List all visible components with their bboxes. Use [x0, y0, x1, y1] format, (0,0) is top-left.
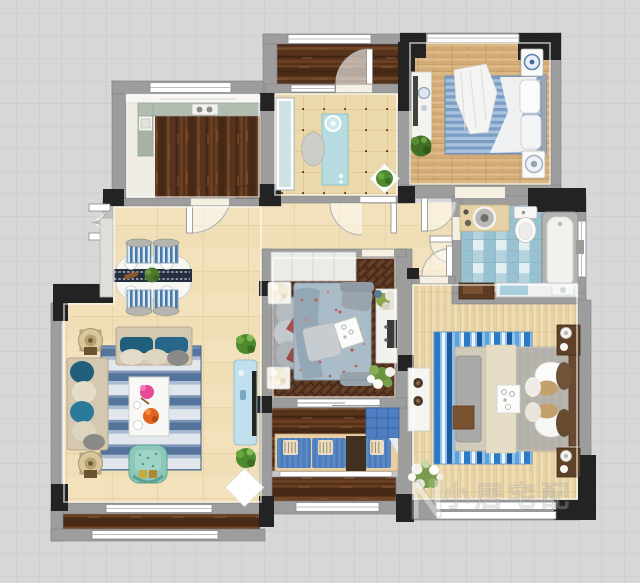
- svg-text:小居宅配: 小居宅配: [442, 480, 574, 512]
